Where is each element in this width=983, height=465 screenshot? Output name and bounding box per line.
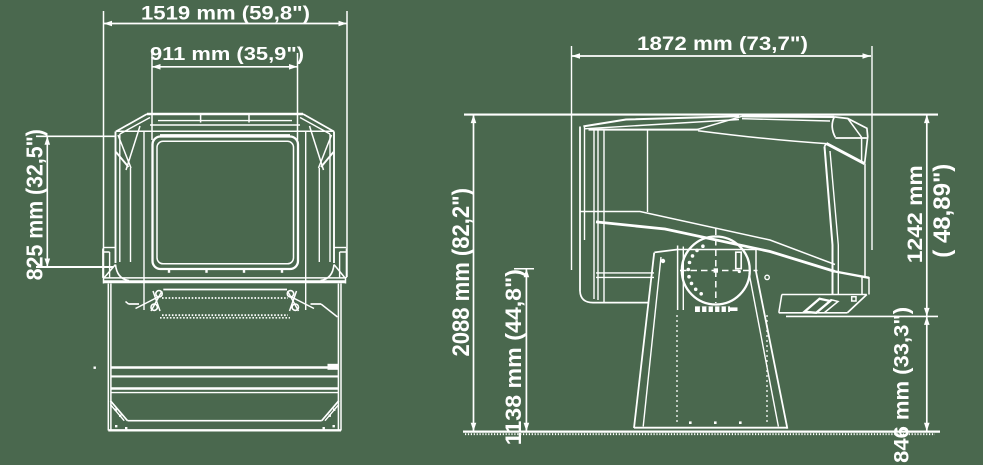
svg-text:1138 mm (44,8"): 1138 mm (44,8") <box>501 269 526 445</box>
svg-text:1872 mm (73,7"): 1872 mm (73,7") <box>637 34 808 55</box>
svg-text:846 mm (33,3"): 846 mm (33,3") <box>891 307 914 463</box>
svg-text:1519 mm (59,8"): 1519 mm (59,8") <box>141 3 310 24</box>
svg-text:2088 mm (82,2"): 2088 mm (82,2") <box>448 188 475 357</box>
svg-text:911 mm (35,9"): 911 mm (35,9") <box>150 43 304 64</box>
svg-text:1242 mm: 1242 mm <box>903 165 927 263</box>
svg-text:825 mm (32,5"): 825 mm (32,5") <box>22 129 48 280</box>
svg-text:( 48,89"): ( 48,89") <box>929 164 956 258</box>
